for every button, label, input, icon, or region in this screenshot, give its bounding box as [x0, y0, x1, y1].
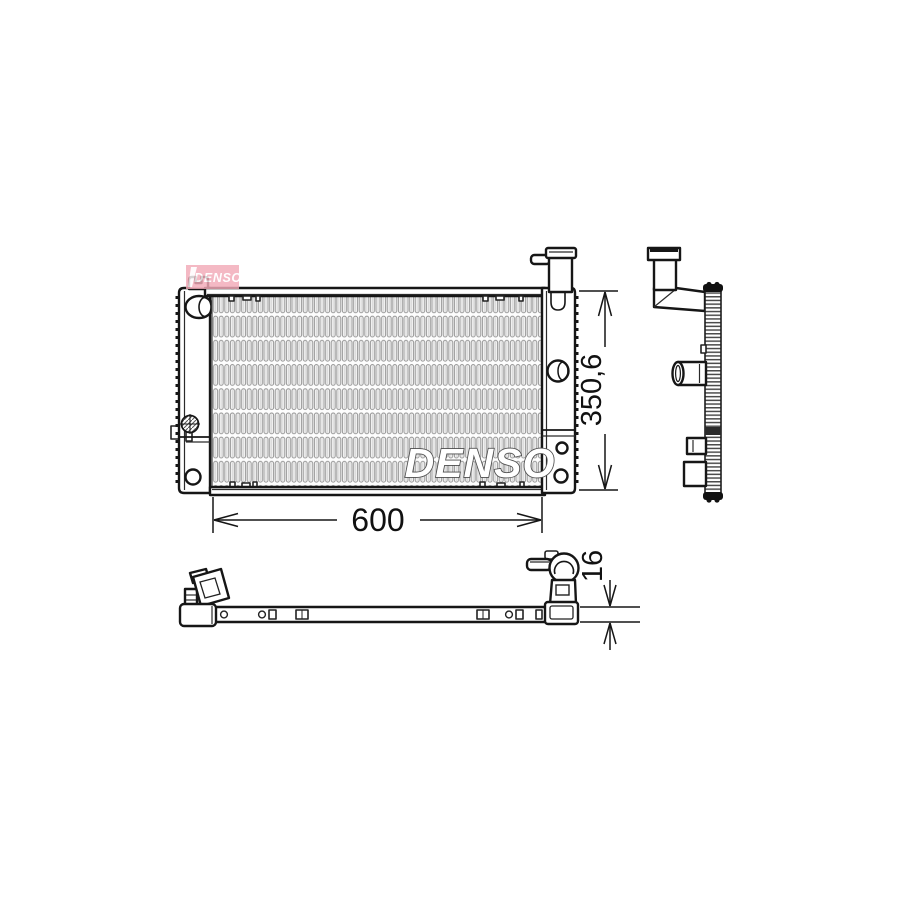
side-middle-pipe	[673, 362, 707, 385]
technical-drawing-canvas: DENSO	[0, 0, 900, 900]
radiator-bottom-view	[180, 551, 579, 626]
side-strip-band	[705, 427, 721, 435]
side-core-strip	[705, 289, 721, 495]
bottom-overflow-pipe	[527, 559, 551, 570]
left-mounting-hole	[186, 470, 201, 485]
denso-logo-text: DENSO	[194, 271, 241, 285]
right-bracket-hole-lower	[555, 470, 568, 483]
right-bracket-hole-upper	[557, 443, 568, 454]
width-dimension-label: 600	[351, 502, 404, 538]
dimension-depth: 16	[577, 550, 640, 650]
dimension-width: 600	[213, 497, 542, 538]
dimension-height: 350,6	[576, 291, 618, 490]
side-neck-tube	[654, 259, 676, 290]
bottom-cap-circle	[550, 554, 579, 583]
denso-core-watermark: DENSO	[405, 440, 556, 486]
radiator-technical-drawing: DENSO	[0, 0, 900, 900]
left-tank	[177, 277, 213, 493]
denso-logo-watermark: DENSO	[186, 265, 242, 289]
filler-neck-front	[531, 248, 576, 292]
radiator-cap	[546, 248, 576, 258]
side-lower-stub	[687, 438, 706, 454]
depth-dimension-label: 16	[577, 550, 609, 582]
side-neck-elbow	[654, 288, 705, 311]
side-core-bottom-cap	[703, 492, 723, 500]
height-dimension-label: 350,6	[576, 354, 608, 427]
side-bottom-block	[684, 462, 706, 486]
radiator-side-view	[648, 248, 723, 503]
side-core-top-cap	[703, 284, 723, 292]
